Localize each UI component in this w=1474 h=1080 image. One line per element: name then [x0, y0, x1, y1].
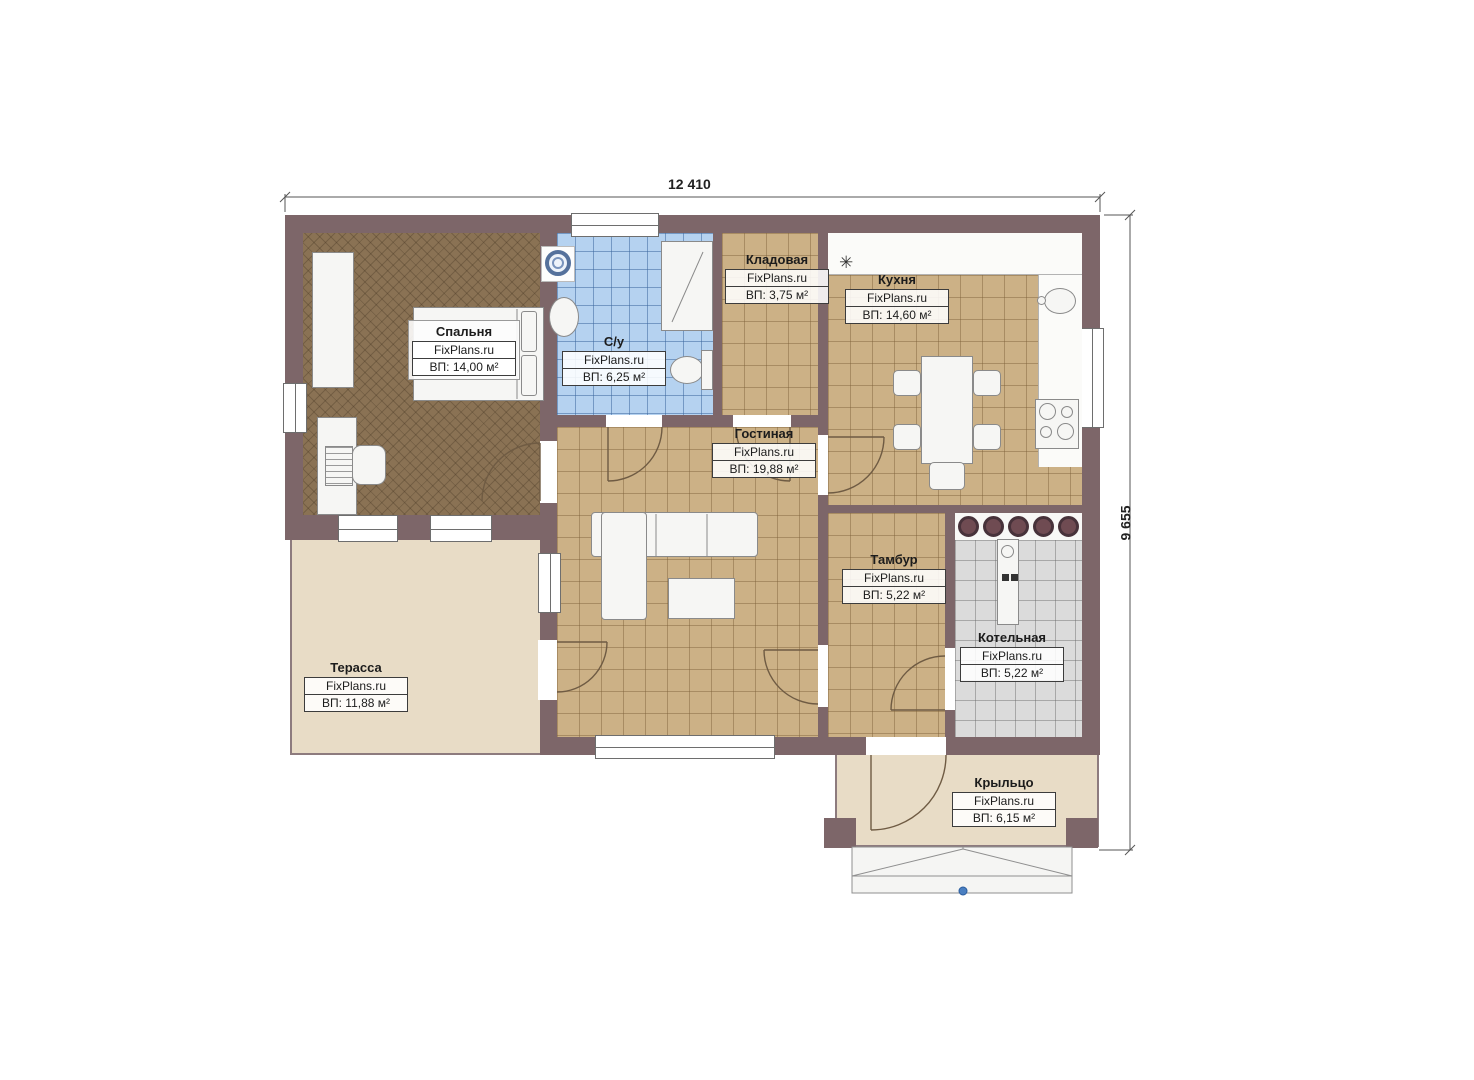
fridge-mark-icon: ✳	[839, 253, 853, 273]
cooktop-burner	[1057, 423, 1074, 440]
toilet-tank	[701, 350, 713, 390]
toilet-bowl	[670, 356, 704, 384]
room-label-porch: Крыльцо FixPlans.ru ВП: 6,15 м²	[952, 775, 1056, 827]
dining-table	[921, 356, 973, 464]
wardrobe	[312, 252, 354, 388]
wall-kitchen-bottom	[828, 505, 1082, 513]
room-watermark: FixPlans.ru	[305, 678, 407, 694]
room-label-boiler: Котельная FixPlans.ru ВП: 5,22 м²	[960, 630, 1064, 682]
floor-plan: ✳	[0, 0, 1474, 1080]
dining-chair	[893, 370, 921, 396]
cooktop-burner	[1039, 403, 1056, 420]
window-bedroom-south-2	[430, 515, 492, 542]
kitchen-faucet	[1037, 296, 1046, 305]
door-opening-bedroom	[540, 441, 557, 503]
wall-bedroom-bottom	[285, 515, 557, 540]
window-living-left	[538, 553, 561, 613]
door-opening-boiler	[945, 648, 955, 710]
door-opening-vestibule	[818, 645, 828, 707]
window-kitchen-right	[1080, 328, 1104, 428]
room-vestibule-floor	[828, 513, 945, 737]
door-opening-terrace	[538, 640, 557, 700]
room-area: ВП: 11,88 м²	[305, 694, 407, 711]
wall-right	[1082, 233, 1100, 737]
room-label-vestibule: Тамбур FixPlans.ru ВП: 5,22 м²	[842, 552, 946, 604]
room-watermark: FixPlans.ru	[961, 648, 1063, 664]
dining-chair	[973, 370, 1001, 396]
room-name: Кухня	[845, 272, 949, 287]
manifold-port	[1033, 516, 1054, 537]
room-watermark: FixPlans.ru	[713, 444, 815, 460]
room-watermark: FixPlans.ru	[563, 352, 665, 368]
room-watermark: FixPlans.ru	[726, 270, 828, 286]
washing-machine-drum-inner	[552, 257, 564, 269]
wall-top	[285, 215, 1100, 233]
door-opening-bathroom	[606, 415, 662, 427]
room-label-bathroom: С/у FixPlans.ru ВП: 6,25 м²	[562, 334, 666, 386]
dining-chair	[929, 462, 965, 490]
room-label-terrace: Терасса FixPlans.ru ВП: 11,88 м²	[304, 660, 408, 712]
room-watermark: FixPlans.ru	[843, 570, 945, 586]
room-name: Терасса	[304, 660, 408, 675]
cooktop-burner	[1040, 426, 1052, 438]
terrace-deck	[290, 540, 542, 755]
desk-chair	[352, 445, 386, 485]
room-name: Котельная	[960, 630, 1064, 645]
room-area: ВП: 19,88 м²	[713, 460, 815, 477]
dresser	[325, 446, 353, 486]
room-name: Гостиная	[712, 426, 816, 441]
room-name: Крыльцо	[952, 775, 1056, 790]
door-opening-porch	[866, 737, 946, 755]
sink	[549, 297, 579, 337]
room-area: ВП: 5,22 м²	[961, 664, 1063, 681]
room-area: ВП: 6,15 м²	[953, 809, 1055, 826]
manifold-port	[1058, 516, 1079, 537]
window-living-south	[595, 735, 775, 759]
manifold-port	[1008, 516, 1029, 537]
room-name: Спальня	[412, 324, 516, 339]
dining-chair	[893, 424, 921, 450]
bed-pillow	[521, 355, 537, 396]
cooktop-burner	[1061, 406, 1073, 418]
wall-bathroom-storage	[713, 233, 722, 415]
room-label-kitchen: Кухня FixPlans.ru ВП: 14,60 м²	[845, 272, 949, 324]
kitchen-sink	[1044, 288, 1076, 314]
dimension-width-label: 12 410	[668, 176, 711, 192]
manifold-port	[958, 516, 979, 537]
window-top	[571, 213, 659, 237]
room-area: ВП: 6,25 м²	[563, 368, 665, 385]
room-name: Тамбур	[842, 552, 946, 567]
room-area: ВП: 14,00 м²	[413, 358, 515, 375]
porch-wall-stub-right	[1066, 818, 1098, 848]
coffee-table	[668, 578, 735, 619]
boiler-gauge	[1001, 545, 1014, 558]
dimension-height-label: 9 655	[1118, 505, 1134, 540]
room-watermark: FixPlans.ru	[413, 342, 515, 358]
porch-wall-stub-left	[824, 818, 856, 848]
dining-chair	[973, 424, 1001, 450]
door-opening-kitchen	[818, 435, 828, 495]
room-label-storage: Кладовая FixPlans.ru ВП: 3,75 м²	[725, 252, 829, 304]
window-bedroom-left	[283, 383, 307, 433]
sofa-chaise	[601, 512, 647, 620]
room-watermark: FixPlans.ru	[953, 793, 1055, 809]
room-area: ВП: 5,22 м²	[843, 586, 945, 603]
room-area: ВП: 3,75 м²	[726, 286, 828, 303]
room-label-living: Гостиная FixPlans.ru ВП: 19,88 м²	[712, 426, 816, 478]
boiler-switch	[1002, 574, 1009, 581]
shower	[661, 241, 713, 331]
boiler-switch	[1011, 574, 1018, 581]
room-label-bedroom: Спальня FixPlans.ru ВП: 14,00 м²	[408, 320, 520, 380]
bed-pillow	[521, 311, 537, 352]
manifold-port	[983, 516, 1004, 537]
room-area: ВП: 14,60 м²	[846, 306, 948, 323]
window-bedroom-south-1	[338, 515, 398, 542]
room-watermark: FixPlans.ru	[846, 290, 948, 306]
kitchen-counter-top	[828, 233, 1082, 275]
room-name: С/у	[562, 334, 666, 349]
room-name: Кладовая	[725, 252, 829, 267]
